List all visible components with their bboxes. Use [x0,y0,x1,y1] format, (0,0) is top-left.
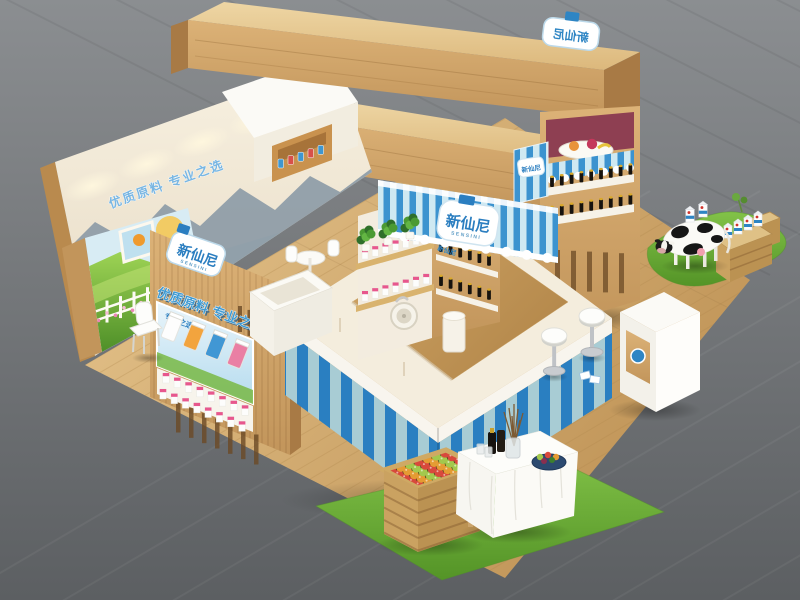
shadow [132,353,164,363]
interior-chair [328,240,339,256]
milk-carton-band [744,224,752,227]
plant-pot [362,244,370,251]
slat-notch [228,424,233,454]
milk-carton-band [699,211,707,214]
dispenser-top [443,312,465,321]
carton-label [194,403,201,406]
slat-notch [587,252,592,292]
sink-drain [402,314,406,318]
milk-carton-dot [746,220,749,223]
bottle-cap [550,176,554,178]
apple-highlight [432,460,434,462]
flower-vase [506,438,520,458]
striped-logo-box: 新仙尼 [514,142,548,204]
header-scallop [501,247,511,257]
booth-scene: 优质原料 专业之选 新仙尼 [0,0,800,600]
bottle-cap [439,275,443,277]
apple-highlight [428,473,430,475]
header-scallop [522,250,532,260]
apple-highlight [396,472,398,474]
apple-highlight [447,461,449,463]
bottle [487,290,491,300]
stool-seat [579,308,605,324]
bottle [439,276,443,286]
carton-label [423,274,429,277]
bottle-cap [560,174,564,176]
bottle [468,250,472,260]
bottle-cap [580,171,584,173]
shadow [661,258,729,274]
plant-pot [384,238,392,245]
carton-label [372,246,378,249]
apple-highlight [454,465,456,467]
niche-product [298,152,304,161]
bottle [487,256,491,266]
fence-post [119,296,122,318]
milk-carton-dot [736,224,739,227]
stool-base [581,348,603,357]
plant-foliage [732,193,740,201]
carton-label [382,285,388,288]
niche-product [288,156,294,165]
slat-notch [215,419,220,449]
bottle [449,279,453,289]
carton-label [393,282,399,285]
fruit-orange [569,141,579,151]
fruit-dragonfruit [587,139,597,149]
header-scallop [542,253,552,263]
cup-dispenser [443,316,465,352]
milk-carton-dot [687,211,690,214]
black-bottle [497,430,505,452]
bottle [458,282,462,292]
carton-label [239,421,246,424]
milk-carton-band [686,216,694,219]
apple-highlight [437,470,439,472]
bottle-cap [589,169,593,171]
carton-label [174,378,181,381]
milk-carton-band [754,220,762,223]
bottle [580,172,584,182]
bottle-cap [619,165,623,167]
carton-label [182,398,189,401]
bottle-cap [589,199,593,201]
bottle-cap [599,198,603,200]
slat-notch [571,251,576,291]
niche-product [278,159,284,168]
carton-label [219,396,226,399]
niche-product [318,145,324,154]
bottle [560,205,564,215]
carton-label [231,401,238,404]
bottle-cap [619,195,623,197]
flower-dot [131,308,135,312]
drinking-glass [477,444,484,454]
milk-carton-dot [700,206,703,209]
carton-label [160,389,167,392]
carton-label [171,394,178,397]
plant-foliage [367,230,376,239]
carton-label [208,391,215,394]
slat-notch [189,408,194,438]
apple-highlight [414,466,416,468]
cow-udder [697,248,705,256]
apple-highlight [452,471,454,473]
bottle-cap [629,163,633,165]
bottle-cap [599,168,603,170]
bottle-cap [570,203,574,205]
beam-end-face [171,20,188,74]
bottle-cap [609,166,613,168]
apple-highlight [445,467,447,469]
bottle [589,201,593,211]
bottle [629,165,633,175]
cow-patch-spot [711,235,723,243]
slat-notch [241,429,246,459]
interior-chair [286,246,297,262]
slat-notch [176,403,181,433]
carton-label [403,280,409,283]
carton-label [216,412,223,415]
bottle-cap [478,286,482,288]
bottle [478,253,482,263]
plant-foliage [741,197,748,204]
carton-label [393,240,399,243]
bottle-cap [570,173,574,175]
stool-base [543,367,565,376]
apple-highlight [443,474,445,476]
bottle-cap [609,196,613,198]
stool-seat [541,328,566,344]
bowl-fruit [541,458,547,464]
bottle [468,284,472,294]
apple-highlight [434,477,436,479]
carton-label [242,405,249,408]
apple-highlight [417,482,419,484]
desk-logo-roundel [631,349,645,363]
plant-foliage [389,224,398,233]
bottle [609,198,613,208]
milk-carton-band [734,228,742,231]
bowl-fruit [549,457,555,463]
carton-label [185,382,192,385]
bottle [619,166,623,176]
niche-product [308,149,314,158]
bottle [599,169,603,179]
apple-highlight [430,467,432,469]
bottle-cap [560,204,564,206]
leaflet [589,375,600,383]
apple-highlight [419,476,421,478]
bottle [478,287,482,297]
apple-highlight [405,469,407,471]
bottle [560,175,564,185]
bottle-cap [629,193,633,195]
chair-leg [133,334,134,352]
bottle [619,196,623,206]
bottle-cap [490,428,494,433]
bottle-cap [487,254,491,256]
bottle-cap [478,252,482,254]
apple-highlight [410,479,412,481]
bottle [629,195,633,205]
milk-carton-dot [756,216,759,219]
flower-dot [114,314,118,318]
carton-label [372,288,378,291]
slat-notch [619,253,624,293]
bottle [580,202,584,212]
milk-carton-dot [726,228,729,231]
chair-leg [158,328,159,346]
apple-highlight [423,463,425,465]
plant-foliage [411,218,420,227]
bottle-cap [468,283,472,285]
slat-notch [254,434,259,464]
apple-highlight [403,475,405,477]
drinking-glass [485,447,492,457]
bottle [589,171,593,181]
carton-label [362,291,368,294]
apple-highlight [421,470,423,472]
flower-dot [122,306,126,310]
header-scallop [420,235,430,245]
carton-label [197,387,204,390]
bottle [570,204,574,214]
bottle-cap [458,280,462,282]
carton-label [413,277,419,280]
bottle-cap [449,277,453,279]
apple-highlight [441,457,443,459]
bottle [458,248,462,258]
bottle-cap [580,201,584,203]
apple-highlight [426,480,428,482]
window-orange-fruit [133,234,145,246]
logo-tag-icon [565,11,580,22]
bottle [550,177,554,187]
bottle [609,168,613,178]
apple-highlight [412,472,414,474]
carton-label [163,373,170,376]
apple-highlight [439,464,441,466]
bottle [570,174,574,184]
flower-dot [105,311,109,315]
carton-label [205,407,212,410]
plant-pot [406,232,414,239]
bottle-cap [487,288,491,290]
bottle [599,199,603,209]
carton-label [228,417,235,420]
booth-render: 优质原料 专业之选 新仙尼 [0,0,800,600]
bowl-fruit [545,452,551,458]
slat-notch [603,252,608,292]
